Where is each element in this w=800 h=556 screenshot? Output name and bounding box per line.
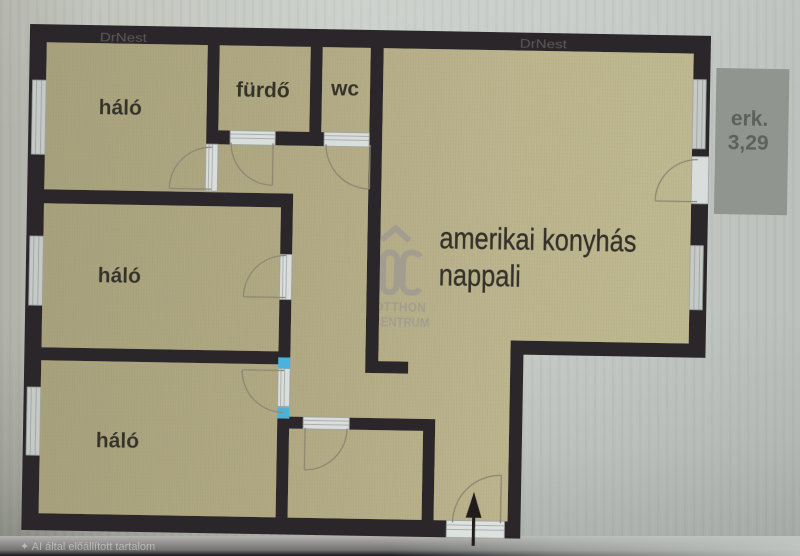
svg-text:amerikai konyhás: amerikai konyhás xyxy=(439,220,637,258)
svg-text:✦ AI által előállított tartalo: ✦ AI által előállított tartalom xyxy=(20,541,155,553)
svg-text:háló: háló xyxy=(98,96,142,120)
svg-text:DrNest: DrNest xyxy=(520,37,568,52)
svg-text:wc: wc xyxy=(330,77,360,101)
svg-text:erk.: erk. xyxy=(731,107,769,131)
svg-text:3,29: 3,29 xyxy=(728,131,769,155)
svg-text:CENTRUM: CENTRUM xyxy=(372,314,429,330)
svg-text:OTTHON: OTTHON xyxy=(374,299,426,315)
svg-text:háló: háló xyxy=(96,429,140,453)
svg-text:fürdő: fürdő xyxy=(236,79,290,103)
svg-text:háló: háló xyxy=(98,264,142,288)
svg-text:DrNest: DrNest xyxy=(100,30,148,45)
svg-text:nappali: nappali xyxy=(439,257,522,293)
